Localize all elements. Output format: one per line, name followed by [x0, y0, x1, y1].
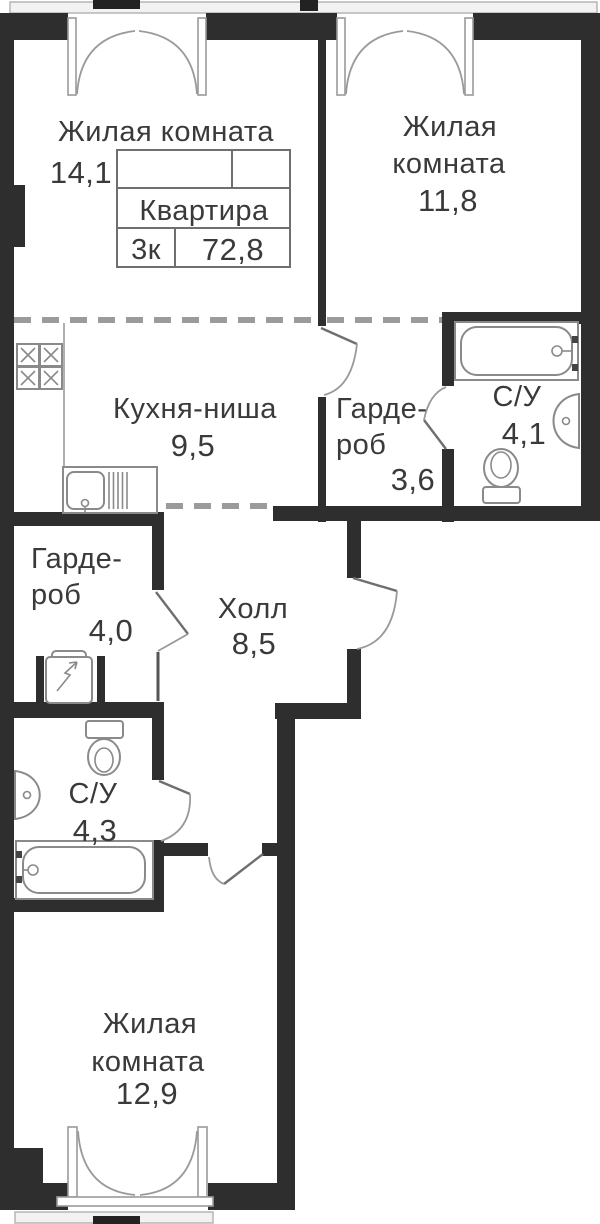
wall-entry-lower: [347, 649, 361, 706]
door-leaf-icon: [159, 781, 190, 794]
partition-wardrobe-top-left: [318, 397, 326, 522]
wardrobe-left-label-2: роб: [31, 579, 81, 611]
wall-top-right: [473, 13, 600, 40]
room-top-left-area: 14,1: [50, 155, 112, 190]
door-leaf-icon: [68, 18, 76, 95]
info-table: Квартира 3к 72,8: [117, 150, 290, 267]
room-bottom-area: 12,9: [116, 1076, 178, 1111]
door-swing-icon: [407, 31, 464, 94]
room-bottom-door: [209, 854, 263, 884]
wall-bath-top-left-lower: [442, 449, 454, 522]
heater-niche-stub-right: [97, 656, 105, 704]
partition-rooms-top: [318, 40, 326, 326]
door-swing-icon: [324, 344, 357, 395]
door-leaf-icon: [156, 592, 188, 634]
wall-wardrobe-left-right-upper: [152, 520, 164, 590]
door-swing-icon: [346, 31, 403, 94]
door-leaf-icon: [353, 578, 397, 591]
floor-plan-page: Квартира 3к 72,8 Жилая комната 14,1 Жила…: [0, 0, 600, 1224]
door-swing-icon: [78, 1131, 135, 1195]
door-swing-icon: [77, 31, 135, 94]
french-door-top-right: [337, 18, 473, 95]
door-swing-icon: [161, 794, 190, 841]
bathroom-bottom-door: [159, 781, 190, 841]
bathroom-top-area: 4,1: [502, 416, 547, 451]
wall-bath-bottom: [0, 898, 164, 912]
apartment-label: Квартира: [139, 195, 269, 227]
bottom-rail-bar: [93, 1216, 140, 1224]
threshold: [57, 1197, 213, 1206]
washbasin-bottom-icon: [15, 771, 40, 819]
wall-left-pilaster: [0, 185, 25, 247]
room-top-left-label: Жилая комната: [58, 116, 274, 148]
door-leaf-icon: [321, 328, 357, 344]
floor-plan: Квартира 3к 72,8 Жилая комната 14,1 Жила…: [0, 0, 600, 1224]
hall-label: Холл: [218, 593, 288, 625]
wall-top-left: [0, 13, 68, 40]
top-left-rail-bar: [93, 0, 140, 9]
toilet-bottom-icon: [86, 721, 123, 775]
stove-icon: [17, 344, 62, 389]
door-swing-icon: [140, 1131, 197, 1195]
heater-niche-stub-left: [36, 656, 44, 704]
wall-right-upper: [581, 13, 600, 520]
wall-bath-bottom-right-upper: [152, 718, 164, 780]
total-area-value: 72,8: [202, 232, 264, 267]
wall-wardrobe-left-bottom: [0, 702, 164, 718]
wardrobe-top-door: [321, 328, 357, 395]
wall-hall-bottom-stub: [262, 843, 277, 856]
french-door-bottom: [57, 1127, 213, 1206]
door-swing-icon: [209, 857, 224, 884]
entrance-door: [353, 578, 397, 649]
bathtub-top-icon: [455, 322, 578, 380]
toilet-top-icon: [483, 449, 520, 503]
rooms-count-label: 3к: [131, 234, 161, 266]
room-bottom-label-2: комната: [91, 1046, 205, 1078]
door-leaf-icon: [68, 1127, 77, 1197]
wall-entry-upper: [347, 520, 361, 578]
door-swing-icon: [158, 634, 188, 651]
door-swing-icon: [357, 591, 397, 649]
room-top-right-area: 11,8: [418, 183, 478, 218]
wardrobe-left-label-1: Гарде-: [31, 543, 122, 575]
wall-top-mid: [206, 13, 337, 40]
bathtub-bottom-icon: [16, 841, 153, 899]
kitchen-area: 9,5: [171, 428, 216, 463]
door-leaf-icon: [224, 854, 263, 884]
wardrobe-top-label-1: Гарде-: [336, 393, 427, 425]
bathroom-top-label: С/У: [493, 381, 542, 413]
hall-area: 8,5: [232, 626, 277, 661]
wardrobe-left-area: 4,0: [89, 613, 134, 648]
top-mid-rail-bar: [300, 0, 318, 11]
door-leaf-icon: [337, 18, 345, 95]
french-door-top-left: [68, 18, 206, 95]
room-bottom-label-1: Жилая: [103, 1008, 197, 1040]
washbasin-top-icon: [554, 394, 580, 448]
wall-right-lower: [277, 719, 295, 1210]
wall-kitchen-bottom: [0, 512, 164, 526]
water-heater-icon: [46, 651, 92, 703]
bathroom-bottom-label: С/У: [69, 778, 118, 810]
door-swing-icon: [139, 31, 197, 94]
wall-step: [275, 703, 361, 719]
walls: [0, 13, 600, 1210]
wardrobe-top-label-2: роб: [336, 429, 386, 461]
wall-bottom-right: [208, 1183, 295, 1210]
room-top-right-label-1: Жилая: [403, 111, 497, 143]
kitchen-sink-icon: [63, 467, 157, 514]
wardrobe-top-area: 3,6: [391, 462, 436, 497]
kitchen-label: Кухня-ниша: [113, 393, 277, 425]
wardrobe-left-door: [156, 592, 188, 651]
wall-bottom-corner-block: [0, 1148, 43, 1210]
door-leaf-icon: [198, 18, 206, 95]
bathroom-bottom-area: 4,3: [73, 813, 118, 848]
room-top-right-label-2: комната: [392, 148, 506, 180]
wall-hall-bottom-left: [164, 843, 208, 856]
door-leaf-icon: [198, 1127, 207, 1197]
door-leaf-icon: [465, 18, 473, 95]
